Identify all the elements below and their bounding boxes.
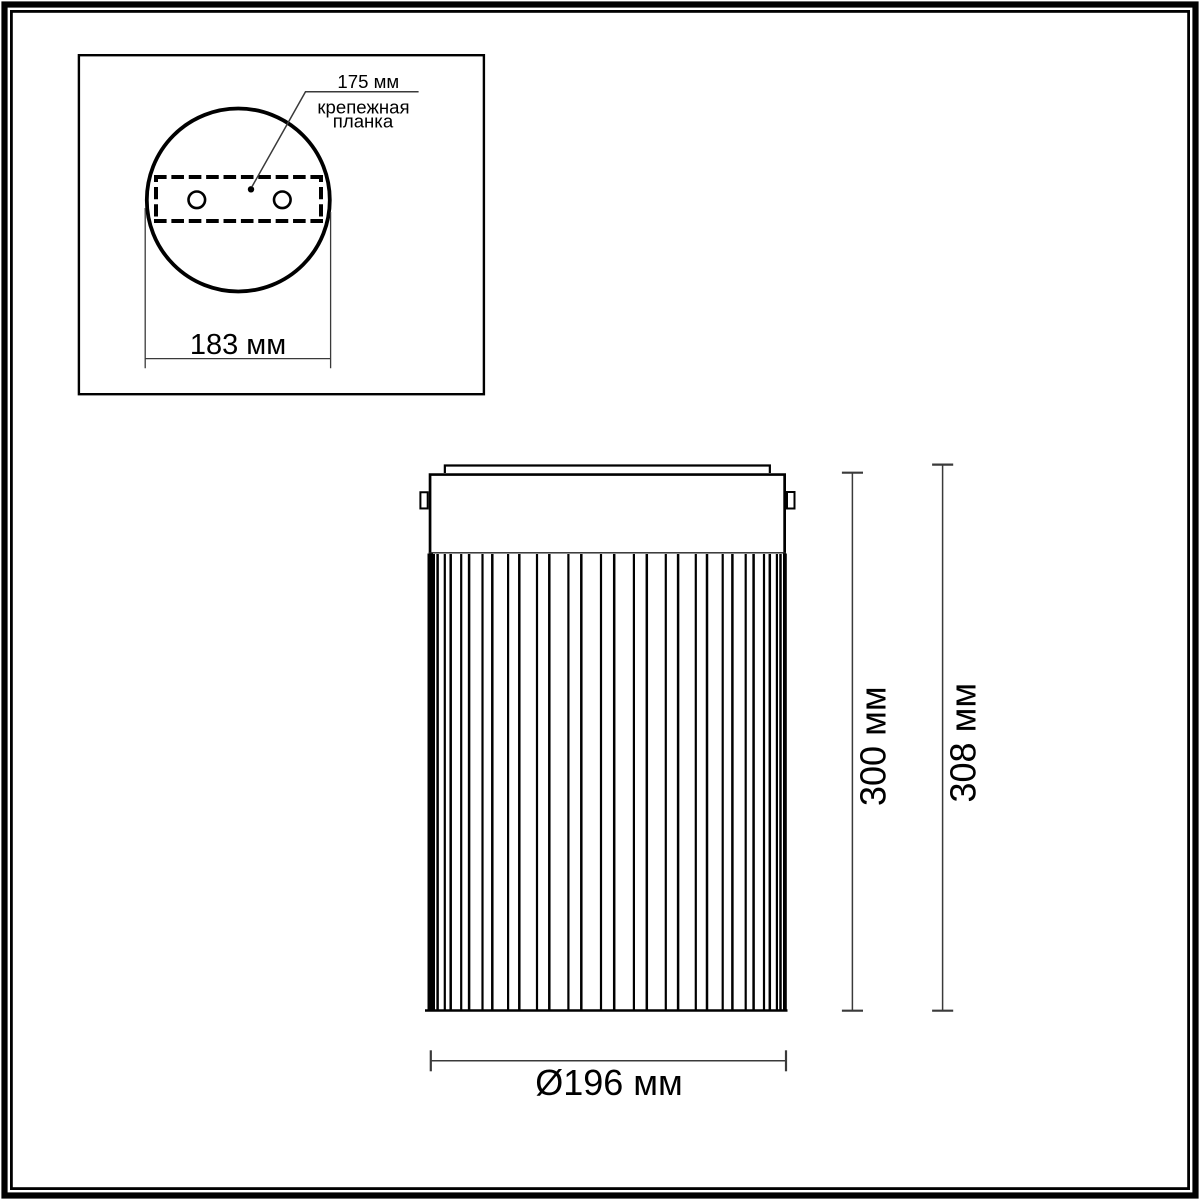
svg-text:183 мм: 183 мм xyxy=(190,329,286,361)
svg-text:175 мм: 175 мм xyxy=(337,71,399,92)
svg-text:Ø196 мм: Ø196 мм xyxy=(535,1062,683,1103)
svg-text:308 мм: 308 мм xyxy=(943,683,984,803)
svg-text:планка: планка xyxy=(333,110,394,131)
svg-text:300 мм: 300 мм xyxy=(852,686,893,806)
